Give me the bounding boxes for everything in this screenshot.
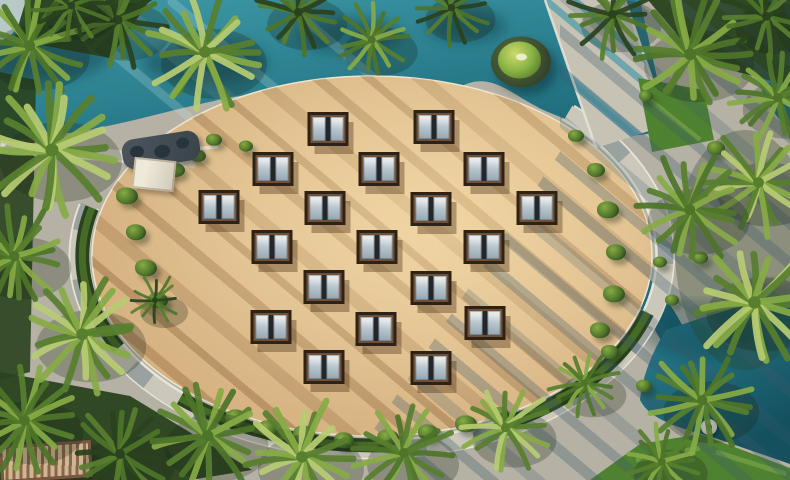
aerial-resort-photo xyxy=(0,0,790,480)
sand-circle xyxy=(92,76,652,436)
scene-background xyxy=(0,0,790,480)
